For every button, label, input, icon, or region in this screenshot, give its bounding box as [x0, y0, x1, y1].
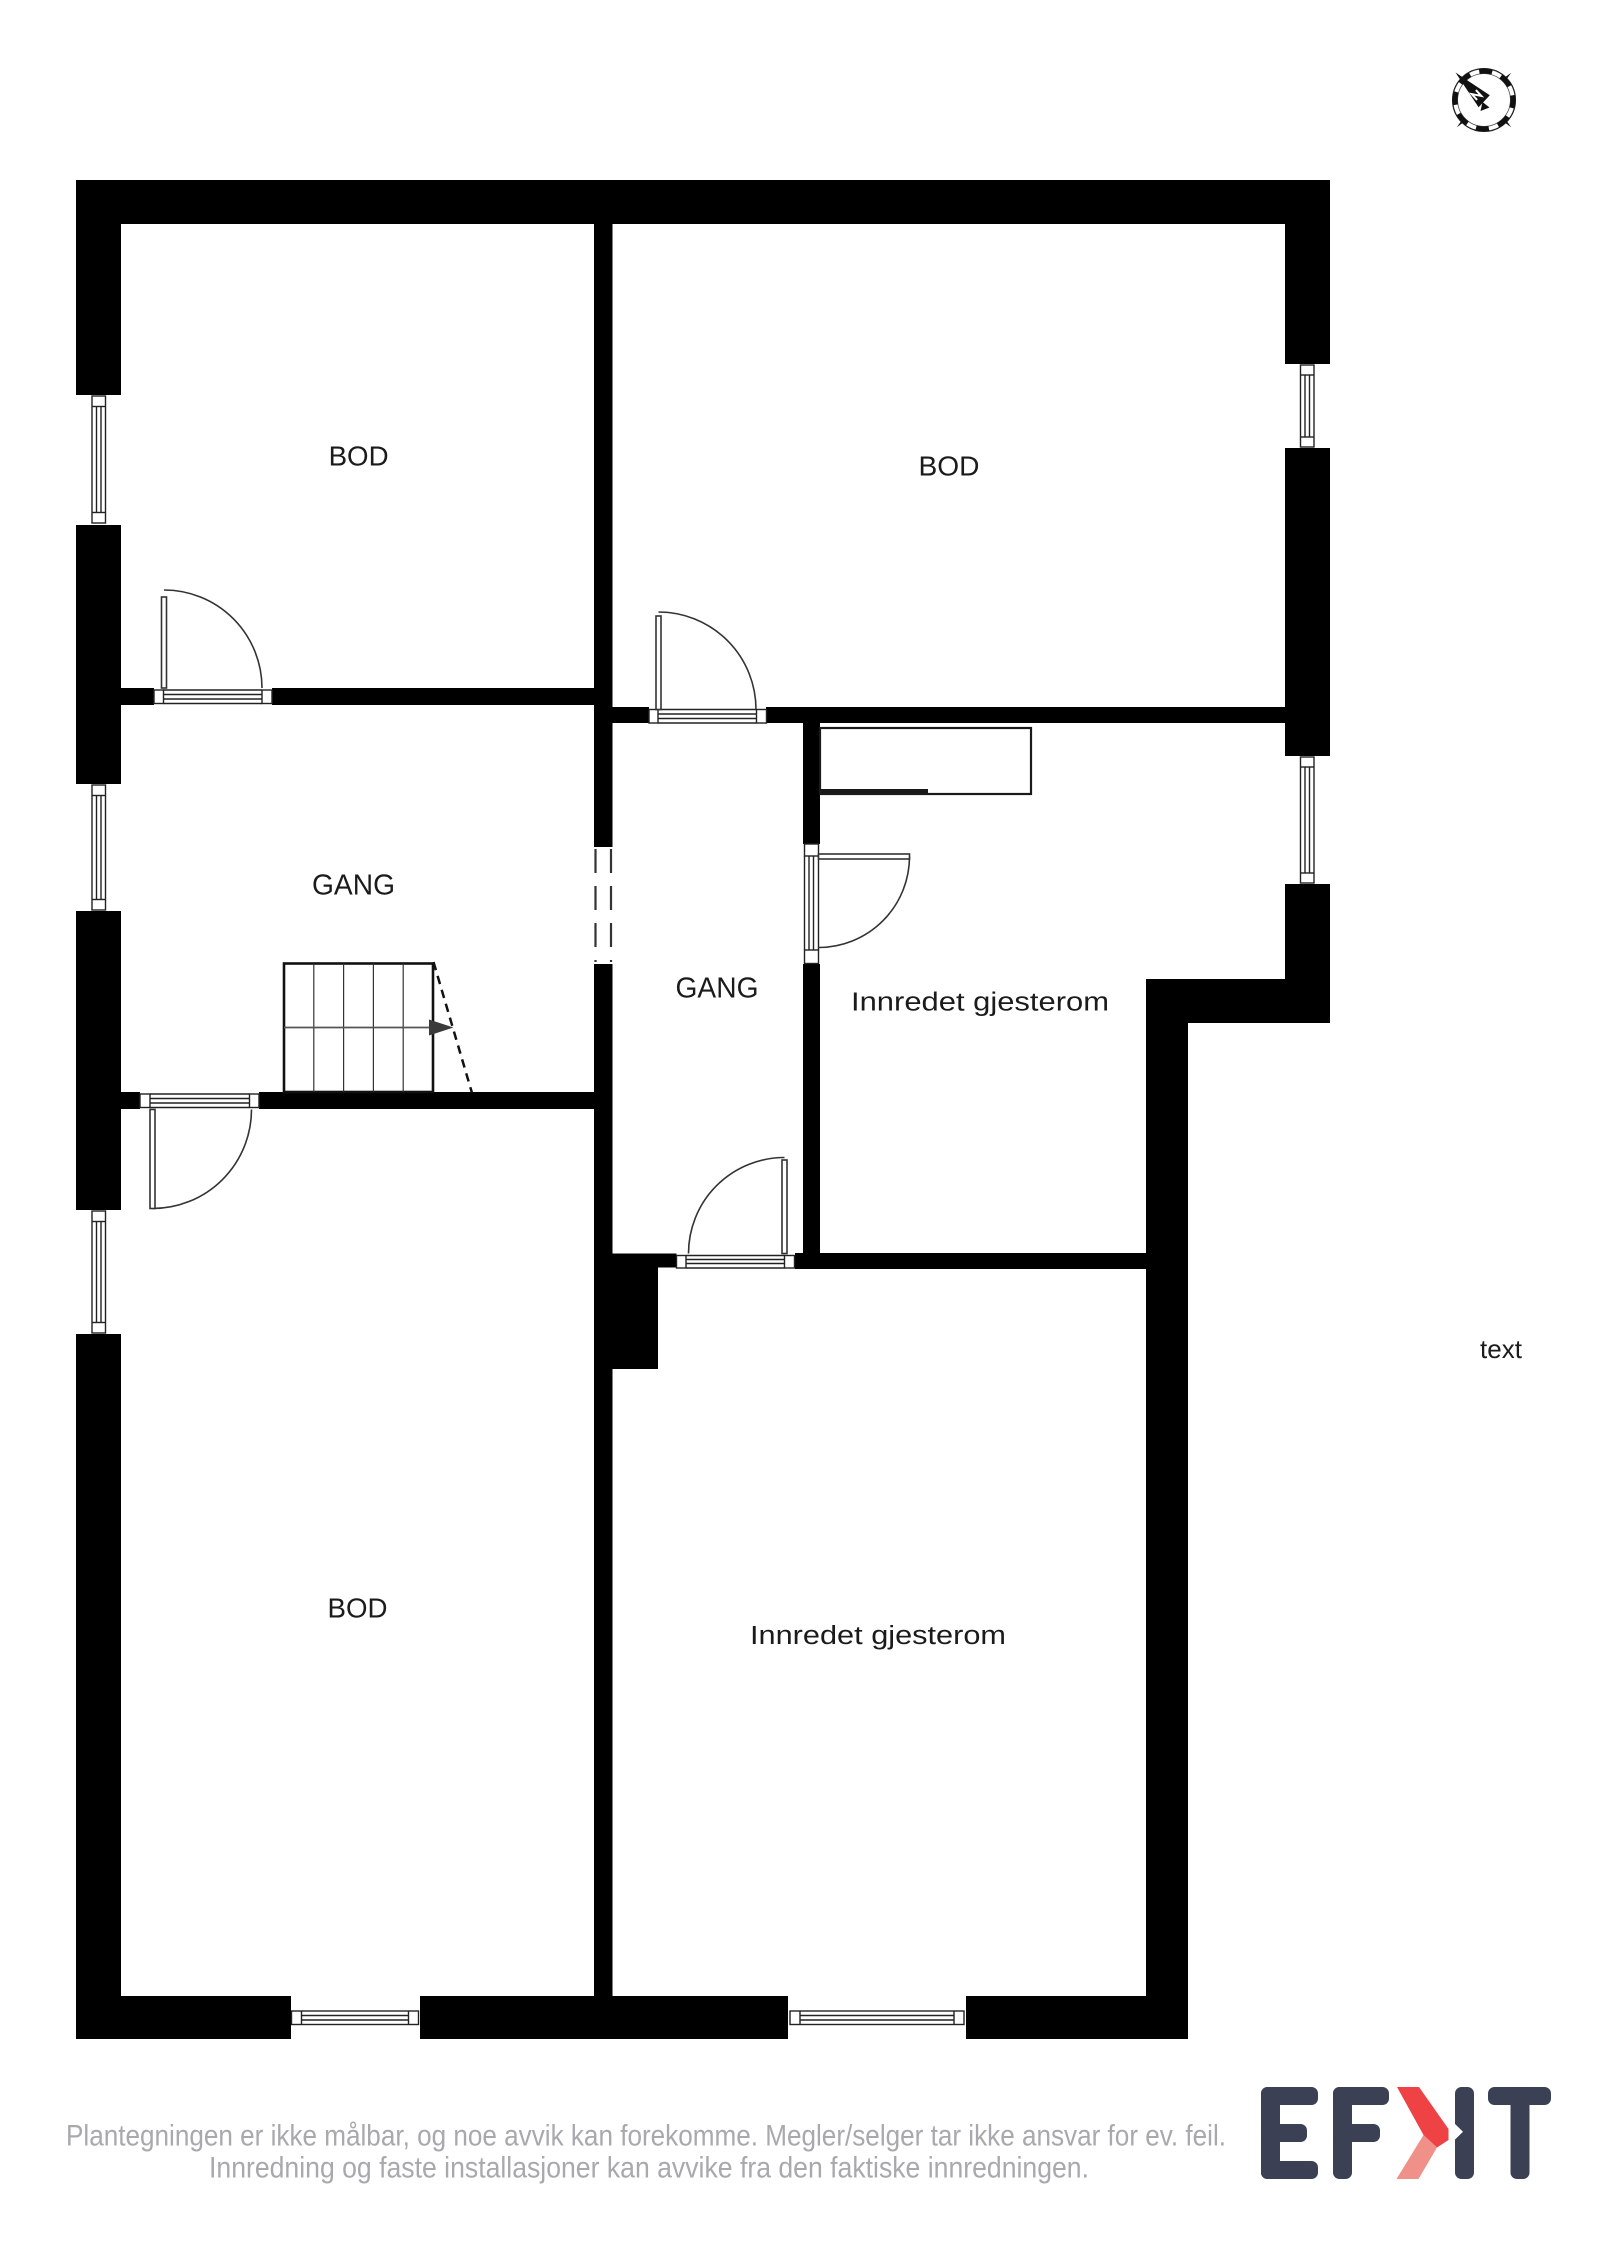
svg-text:GANG: GANG — [676, 972, 759, 1004]
svg-text:BOD: BOD — [328, 1593, 388, 1624]
svg-text:Innredet gjesterom: Innredet gjesterom — [750, 1622, 1006, 1650]
svg-text:GANG: GANG — [312, 869, 395, 901]
svg-text:Innredet gjesterom: Innredet gjesterom — [851, 988, 1109, 1016]
svg-text:text: text — [1480, 1334, 1523, 1364]
svg-text:Innredning og faste installasj: Innredning og faste installasjoner kan a… — [209, 2152, 1089, 2185]
svg-text:Plantegningen er ikke målbar,: Plantegningen er ikke målbar, og noe avv… — [66, 2120, 1226, 2153]
svg-text:BOD: BOD — [919, 451, 980, 482]
svg-text:BOD: BOD — [329, 440, 389, 471]
